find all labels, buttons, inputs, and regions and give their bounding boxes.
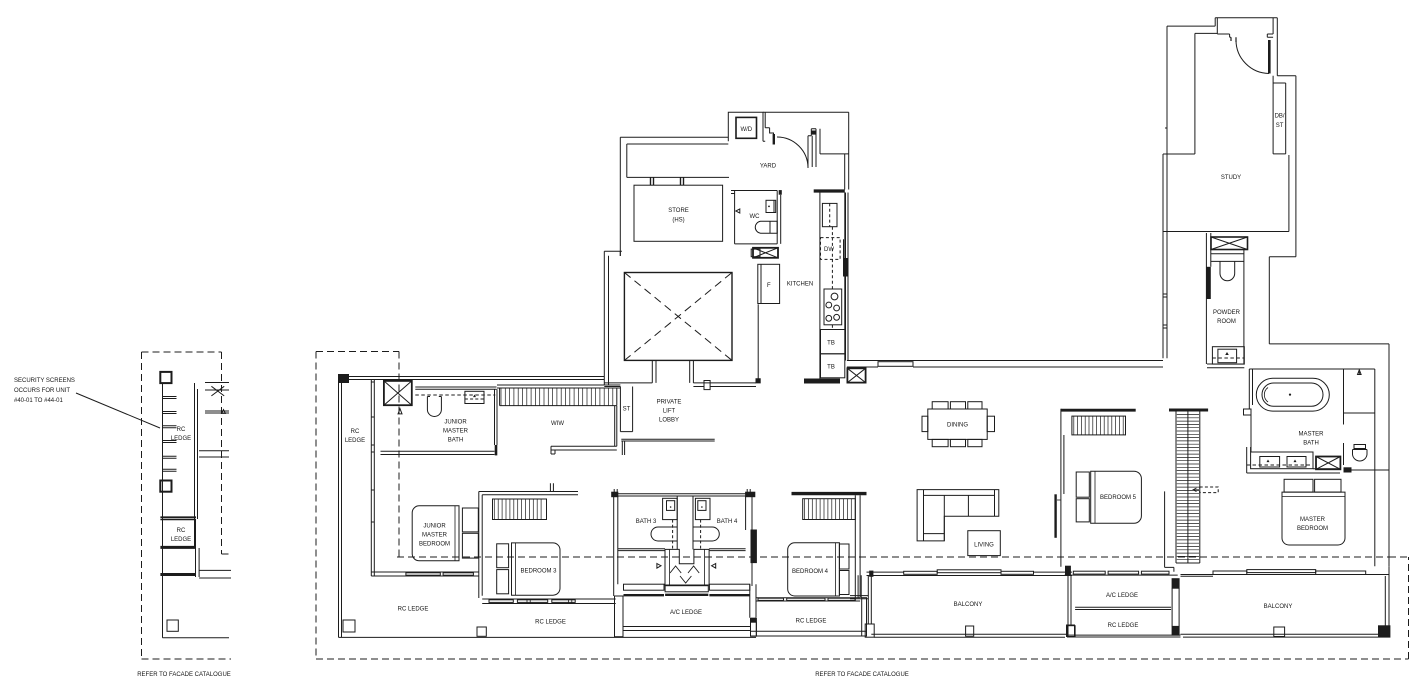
svg-text:OCCURS FOR UNIT: OCCURS FOR UNIT [14, 388, 70, 394]
svg-text:BEDROOM 4: BEDROOM 4 [792, 569, 829, 575]
svg-text:(HS): (HS) [672, 218, 684, 224]
svg-text:A/C LEDGE: A/C LEDGE [670, 610, 702, 616]
svg-text:BATH: BATH [1303, 441, 1319, 447]
svg-text:MASTER: MASTER [422, 533, 448, 539]
svg-text:ROOM: ROOM [1217, 319, 1236, 325]
svg-text:STORE: STORE [668, 208, 689, 214]
svg-text:ST: ST [623, 407, 631, 413]
svg-text:W/D: W/D [740, 127, 752, 133]
svg-text:TB: TB [827, 341, 835, 347]
svg-text:JUNIOR: JUNIOR [423, 524, 446, 530]
svg-text:REFER TO FACADE CATALOGUE: REFER TO FACADE CATALOGUE [137, 672, 231, 678]
svg-text:YARD: YARD [760, 164, 777, 170]
svg-text:TB: TB [827, 365, 835, 371]
svg-text:RC LEDGE: RC LEDGE [398, 607, 429, 613]
svg-text:PRIVATE: PRIVATE [657, 400, 682, 406]
svg-text:LIVING: LIVING [974, 543, 994, 549]
svg-text:F: F [767, 283, 771, 289]
svg-text:BATH 4: BATH 4 [717, 519, 738, 525]
svg-text:DB/: DB/ [1275, 114, 1285, 120]
svg-text:RC: RC [177, 427, 186, 433]
svg-text:WC: WC [750, 214, 761, 220]
svg-text:KITCHEN: KITCHEN [787, 282, 813, 288]
svg-text:WIW: WIW [551, 421, 564, 427]
svg-text:MASTER: MASTER [443, 429, 469, 435]
svg-text:LOBBY: LOBBY [659, 418, 679, 424]
svg-text:REFER TO FACADE CATALOGUE: REFER TO FACADE CATALOGUE [815, 672, 909, 678]
svg-text:RC LEDGE: RC LEDGE [796, 619, 827, 625]
svg-text:MASTER: MASTER [1300, 517, 1326, 523]
svg-text:BEDROOM 3: BEDROOM 3 [520, 569, 557, 575]
svg-text:A/C LEDGE: A/C LEDGE [1106, 593, 1138, 599]
svg-text:BEDROOM: BEDROOM [1297, 526, 1328, 532]
svg-text:LEDGE: LEDGE [171, 436, 191, 442]
svg-text:LEDGE: LEDGE [171, 537, 191, 543]
svg-text:RC: RC [351, 429, 360, 435]
svg-text:BEDROOM 5: BEDROOM 5 [1100, 495, 1137, 501]
svg-text:ST: ST [1276, 123, 1284, 129]
svg-text:JUNIOR: JUNIOR [444, 420, 467, 426]
svg-text:DINING: DINING [947, 423, 968, 429]
svg-text:STUDY: STUDY [1221, 175, 1241, 181]
svg-text:RC: RC [177, 528, 186, 534]
svg-text:SECURITY SCREENS: SECURITY SCREENS [14, 378, 75, 384]
svg-text:BALCONY: BALCONY [1264, 604, 1293, 610]
svg-text:RC LEDGE: RC LEDGE [1108, 623, 1139, 629]
svg-text:BATH: BATH [448, 438, 464, 444]
svg-text:RC LEDGE: RC LEDGE [535, 620, 566, 626]
svg-text:LEDGE: LEDGE [345, 438, 365, 444]
svg-text:BEDROOM: BEDROOM [419, 542, 450, 548]
svg-text:LIFT: LIFT [663, 409, 676, 415]
svg-text:BATH 3: BATH 3 [636, 519, 657, 525]
svg-text:BALCONY: BALCONY [954, 602, 983, 608]
svg-text:MASTER: MASTER [1298, 432, 1324, 438]
svg-text:POWDER: POWDER [1213, 310, 1241, 316]
svg-text:#40-01 TO #44-01: #40-01 TO #44-01 [14, 398, 63, 404]
